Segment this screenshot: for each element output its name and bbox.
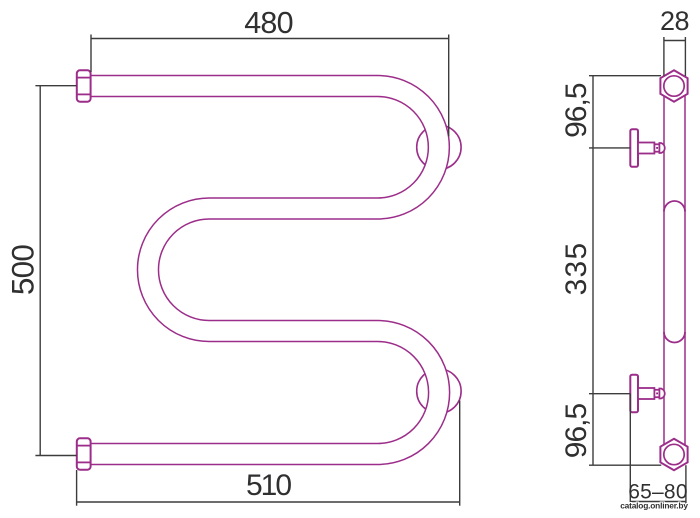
svg-text:335: 335 xyxy=(560,242,593,296)
svg-text:28: 28 xyxy=(660,6,689,36)
svg-text:96,5: 96,5 xyxy=(560,403,593,458)
svg-text:catalog.onliner.by: catalog.onliner.by xyxy=(620,501,688,511)
svg-text:480: 480 xyxy=(244,6,293,40)
svg-text:500: 500 xyxy=(4,245,40,295)
svg-text:510: 510 xyxy=(246,469,291,502)
svg-text:96,5: 96,5 xyxy=(560,83,593,138)
